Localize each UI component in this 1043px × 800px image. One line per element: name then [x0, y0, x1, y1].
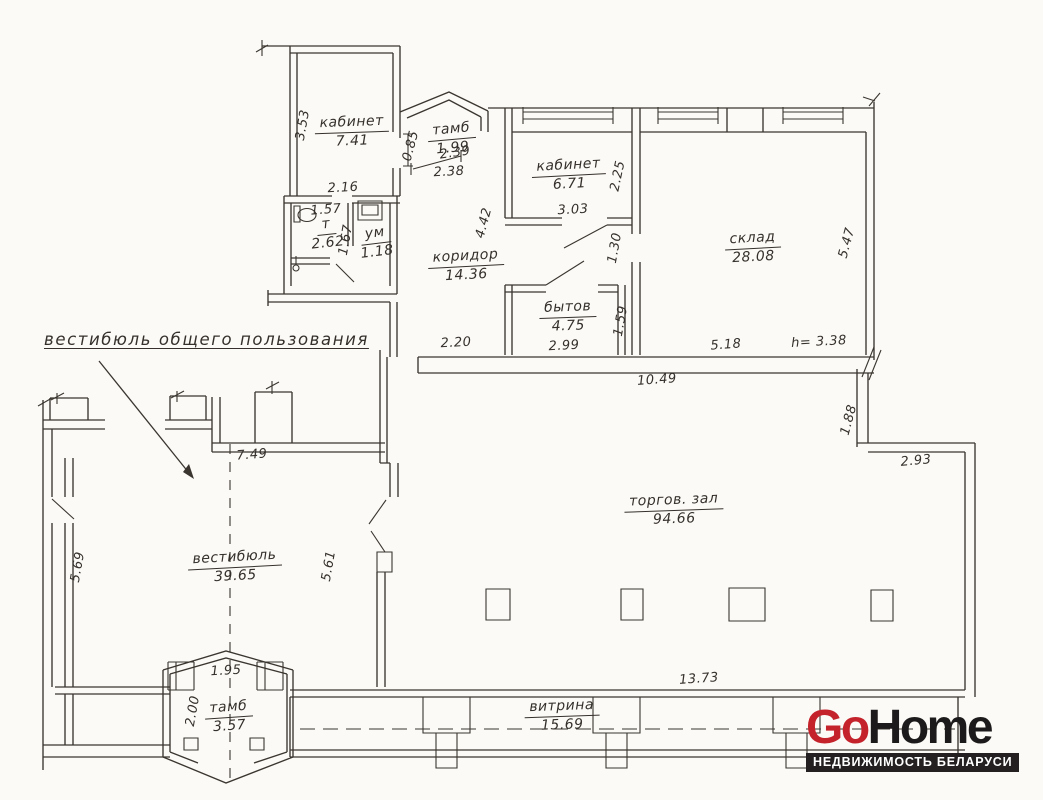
- dim-3-03: 3.03: [557, 202, 589, 219]
- shared-vestibule-annotation: вестибюль общего пользования: [44, 330, 369, 349]
- dim-2-38: 2.38: [433, 164, 465, 181]
- window-strips: [523, 107, 843, 124]
- break-marks: [38, 40, 881, 406]
- divider-pier: [377, 552, 392, 572]
- room-name: кабинет: [531, 155, 606, 178]
- dim-h-3-38: h= 3.38: [791, 333, 847, 351]
- room-name: коридор: [427, 246, 504, 269]
- room-area: 3.57: [205, 716, 254, 736]
- room-area: 15.69: [525, 716, 600, 736]
- room-area: 28.08: [725, 248, 782, 268]
- hall-columns: [486, 588, 893, 621]
- dim-13-73: 13.73: [679, 670, 720, 688]
- logo-go: Go: [806, 701, 868, 754]
- walls: [43, 46, 975, 783]
- room-label-vestibule-3965: вестибюль 39.65: [187, 547, 283, 588]
- room-name: бытов: [539, 298, 597, 319]
- dim-10-49: 10.49: [637, 371, 678, 389]
- dim-2-16: 2.16: [327, 180, 359, 197]
- floor-plan-drawing: [0, 0, 1043, 800]
- room-label-corridor-1436: коридор 14.36: [427, 246, 504, 286]
- room-area: 7.41: [315, 132, 390, 152]
- room-label-office-741: кабинет 7.41: [314, 113, 389, 152]
- gohome-logo: GoHome НЕДВИЖИМОСТЬ БЕЛАРУСИ: [806, 705, 1019, 772]
- room-label-office-671: кабинет 6.71: [531, 155, 607, 195]
- room-area: 94.66: [624, 509, 724, 530]
- dim-2-20: 2.20: [440, 335, 472, 352]
- room-label-shopwindow-1569: витрина 15.69: [524, 697, 600, 736]
- dim-7-49: 7.49: [236, 446, 268, 463]
- room-name: т: [316, 215, 337, 236]
- room-area: 4.75: [539, 317, 597, 336]
- room-label-washroom-118: ум 1.18: [357, 223, 394, 263]
- floor-plan-page: вестибюль общего пользования кабинет 7.4…: [0, 0, 1043, 800]
- dim-1-95: 1.95: [210, 663, 242, 680]
- dim-5-18: 5.18: [710, 336, 742, 353]
- room-label-utility-475: бытов 4.75: [539, 298, 597, 336]
- room-label-trading-hall-9466: торгов. зал 94.66: [624, 490, 724, 530]
- dim-2-99: 2.99: [548, 338, 580, 355]
- room-label-entrance-tambour-357: тамб 3.57: [204, 697, 254, 736]
- gohome-tagline: НЕДВИЖИМОСТЬ БЕЛАРУСИ: [806, 753, 1019, 773]
- sink: [358, 201, 382, 220]
- dim-1-57: 1.57: [310, 201, 342, 218]
- toilet-tank: [294, 206, 300, 222]
- room-label-warehouse-2808: склад 28.08: [724, 229, 782, 268]
- room-name: торгов. зал: [624, 490, 724, 513]
- room-name: витрина: [524, 697, 599, 719]
- floor-drain: [293, 265, 299, 271]
- room-name: кабинет: [314, 113, 389, 135]
- gohome-wordmark: GoHome: [806, 705, 1019, 751]
- dim-2-93: 2.93: [900, 452, 932, 470]
- logo-home: Home: [868, 701, 991, 754]
